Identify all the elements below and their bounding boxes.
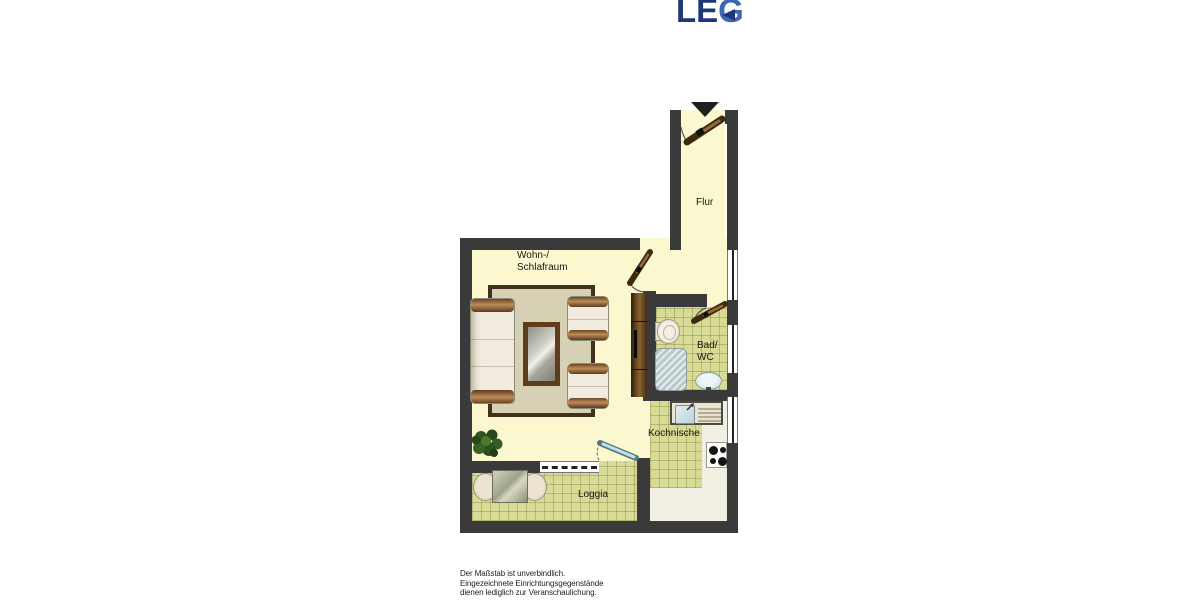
bath-label: Bad/ WC	[697, 340, 718, 364]
page: LEG	[0, 0, 1200, 600]
plan-overlay	[0, 0, 1200, 600]
living-label: Wohn-/ Schlafraum	[517, 250, 568, 274]
loggia-label: Loggia	[578, 489, 608, 501]
flur-label: Flur	[696, 197, 713, 209]
disclaimer-text: Der Maßstab ist unverbindlich. Eingezeic…	[460, 569, 603, 598]
loggia-glass-door	[597, 443, 636, 460]
entrance-door	[681, 119, 722, 142]
living-room-door	[630, 252, 650, 292]
kitchen-faucet-icon	[687, 403, 694, 410]
bath-door	[694, 304, 725, 321]
kitchen-label: Kochnische	[648, 428, 700, 440]
plant	[472, 430, 503, 458]
entrance-arrow-icon	[691, 102, 719, 117]
